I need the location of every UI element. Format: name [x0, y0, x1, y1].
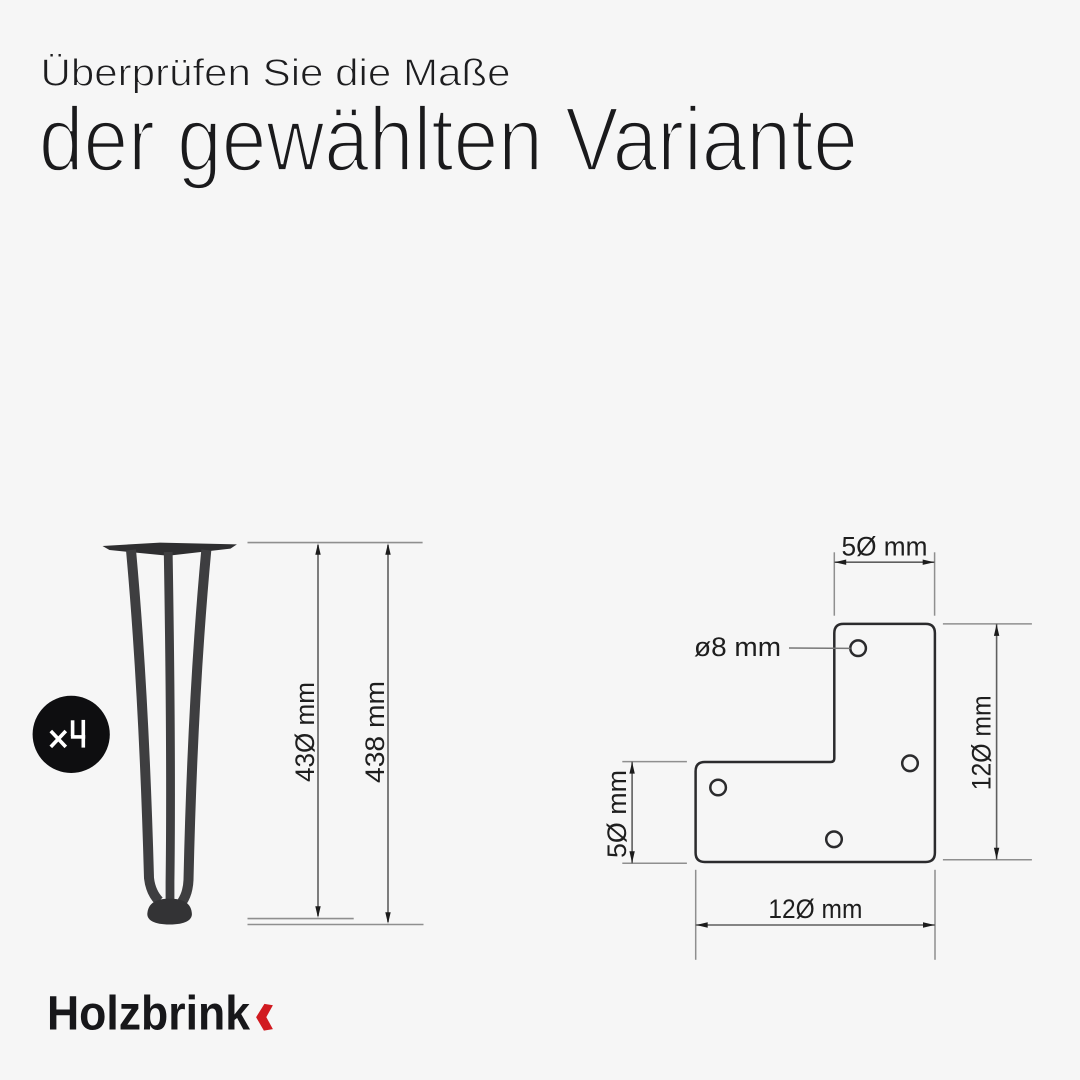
svg-text:438 mm: 438 mm: [360, 681, 390, 783]
svg-text:5Ø mm: 5Ø mm: [842, 531, 928, 561]
svg-text:der gewählten Variante: der gewählten Variante: [39, 90, 858, 191]
svg-text:5Ø mm: 5Ø mm: [602, 770, 632, 858]
svg-text:43Ø mm: 43Ø mm: [290, 682, 320, 782]
svg-text:12Ø mm: 12Ø mm: [768, 894, 862, 924]
svg-text:Überprüfen Sie die Maße: Überprüfen Sie die Maße: [41, 52, 511, 94]
svg-text:12Ø mm: 12Ø mm: [967, 695, 997, 790]
svg-text:ø8 mm: ø8 mm: [694, 632, 781, 662]
svg-text:Holzbrink: Holzbrink: [47, 988, 250, 1041]
